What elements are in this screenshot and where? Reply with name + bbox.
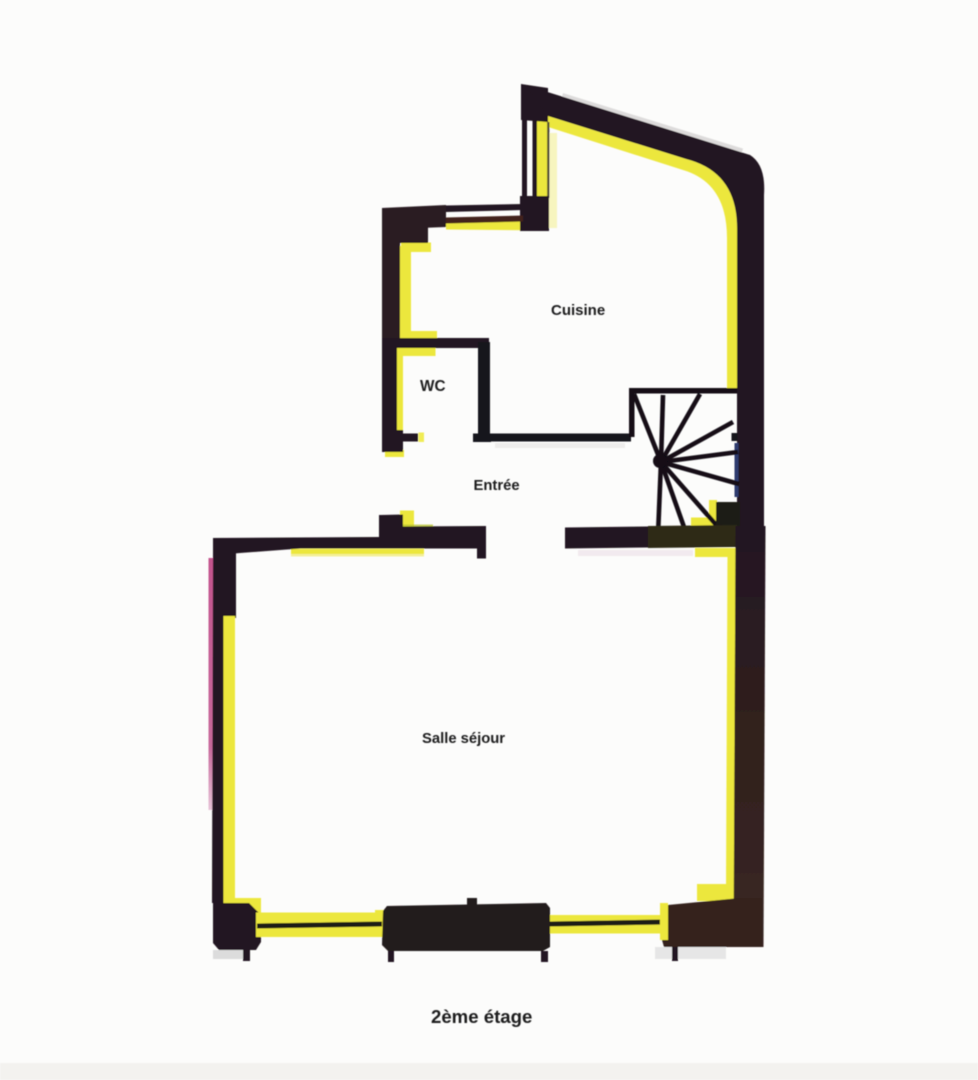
svg-text:Cuisine: Cuisine [551,302,605,319]
svg-text:Entrée: Entrée [474,478,520,494]
svg-text:WC: WC [420,378,446,395]
svg-text:Salle séjour: Salle séjour [422,731,505,747]
svg-text:2ème étage: 2ème étage [431,1006,532,1027]
